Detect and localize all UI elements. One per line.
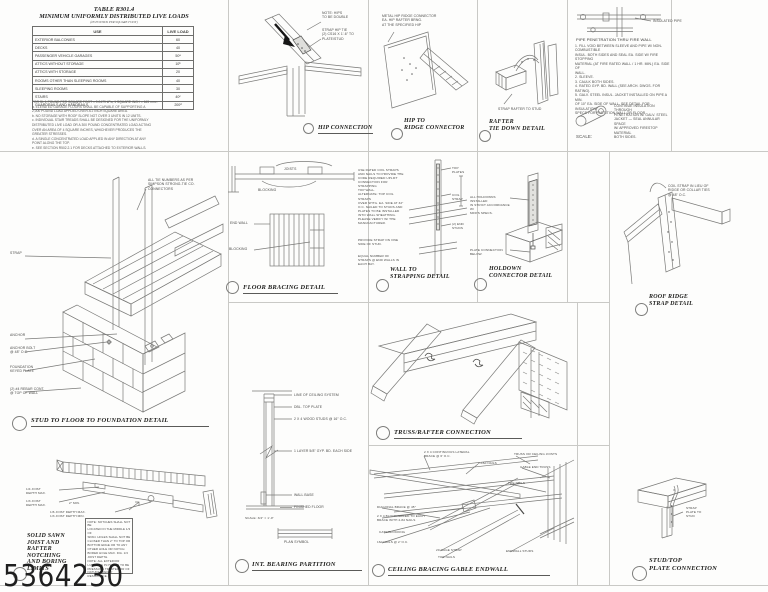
- label-hips-double: NOTE: HIPS TO BE DOUBLE: [322, 11, 362, 20]
- hip-to-ridge-drawing: [378, 30, 474, 118]
- cell-use: EXTERIOR BALCONIES: [33, 36, 163, 44]
- stud-to-floor-drawing: [25, 162, 225, 420]
- label-strap-plate-stud: STRAP PLATE TO STUD: [686, 506, 701, 518]
- label-ceiling-system: LINE OF CEILING SYSTEM: [294, 393, 339, 397]
- watermark-text: 5364230: [3, 559, 124, 592]
- note-wall-strapping: USE RATED COIL STRAPS AND NAILS TO PROVI…: [358, 168, 404, 225]
- floor-bracing-plan-drawing: [252, 212, 328, 270]
- title-holdown: HOLDOWN CONNECTOR DETAIL: [489, 266, 569, 280]
- label-top-plates: TOP PLATES: [452, 166, 464, 174]
- table-row: PASSENGER VEHICLE GARAGES50ᵃ: [33, 52, 194, 60]
- label-endwall-studs: ENDWALL STUDS: [506, 549, 533, 553]
- detail-bubble: [303, 123, 314, 134]
- table-row: ATTICS WITH STORAGE20: [33, 68, 194, 76]
- cell-load: 20: [163, 68, 194, 76]
- label-wall-base: WALL BASE: [294, 493, 314, 497]
- wall-strapping-drawing: [405, 158, 470, 280]
- label-cats-blocking: CATS/BLOCKING: [379, 530, 405, 534]
- label-wood-studs: 2 X 4 WOOD STUDS @ 16" O.C.: [294, 417, 347, 421]
- detail-bubble: [226, 281, 239, 294]
- label-hip-strap: STRAP HIP TIE (2) CS16 X 1'-6" TO PLATE/…: [322, 28, 370, 41]
- title-hip-connection: HIP CONNECTION: [318, 125, 373, 134]
- label-toe-nails-1: TOE NAILS: [508, 481, 525, 485]
- cell-load: 60: [163, 36, 194, 44]
- label-anchor-bolt: ANCHOR BOLT @ 48" O.C.: [10, 346, 40, 355]
- label-joists: JOISTS: [284, 167, 296, 171]
- detail-bubble: [376, 426, 390, 440]
- insulation-jacket-drawing: [574, 103, 612, 129]
- note-wall-strapping-3: EQUAL NUMBER OF STRAPS @ END WALLS IN EA…: [358, 254, 404, 266]
- label-finished-floor: FINISHED FLOOR: [294, 505, 324, 509]
- label-end-studs: (2) END STUDS: [452, 222, 464, 230]
- detail-bubble: [376, 279, 389, 292]
- label-scale-note: SCALE: 3/4" = 1'-0": [245, 516, 274, 520]
- detail-bubble: [474, 278, 487, 291]
- label-third-depth: 1/3 JOIST DEPTH MAX.: [26, 499, 60, 507]
- label-toe-nails-2: TOE NAILS: [438, 555, 455, 559]
- label-foundation-plate: FOUNDATION KEYED PLATE: [10, 365, 42, 374]
- title-wall-to-strapping: WALL TO STRAPPING DETAIL: [390, 267, 462, 281]
- table-footnotes: FOR SI: 1 POUND PER SQUARE FOOT = 0.0479…: [32, 100, 228, 151]
- table-row: EXTERIOR BALCONIES60: [33, 36, 194, 44]
- table-title: TABLE R301.4: [28, 6, 200, 13]
- label-plan-symbol: PLAN SYMBOL: [284, 540, 309, 544]
- table-row: SLEEPING ROOMS30: [33, 85, 194, 93]
- cell-load: 10ᵇ: [163, 60, 194, 68]
- label-coil-strap: COIL STRAP: [452, 193, 463, 201]
- cell-load: 40: [163, 76, 194, 84]
- title-rafter-tie-down: RAFTER TIE DOWN DETAIL: [489, 119, 559, 133]
- label-2in-min: 2" MIN.: [69, 501, 80, 505]
- title-stud-top-plate: STUD/TOP PLATE CONNECTION: [649, 557, 739, 572]
- divider-h2: [228, 302, 610, 303]
- cell-use: PASSENGER VEHICLE GARAGES: [33, 52, 163, 60]
- label-dbl-top-plate: DBL. TOP PLATE: [294, 405, 322, 409]
- title-int-bearing: INT. BEARING PARTITION: [252, 561, 362, 571]
- table-title-2: MINIMUM UNIFORMLY DISTRIBUTED LIVE LOADS: [28, 13, 200, 20]
- label-16d-nails: 16d NAILS @ 2' O.C.: [377, 540, 408, 544]
- hip-connection-drawing: [235, 6, 365, 120]
- label-20-gage-strap: 20 GAGE STRAP: [436, 548, 462, 552]
- firewall-side-note: CONTINUE INSULATION THROUGH PENETRATION …: [614, 104, 670, 140]
- table-row: ATTICS WITHOUT STORAGE10ᵇ: [33, 60, 194, 68]
- live-loads-table-heading: TABLE R301.4 MINIMUM UNIFORMLY DISTRIBUT…: [28, 6, 200, 24]
- label-endwall: END WALL: [230, 221, 248, 225]
- rafter-tie-down-drawing: [484, 38, 562, 110]
- label-blocking-section: BLOCKING: [258, 188, 276, 192]
- label-strap-rafter: STRAP RAFTER TO STUD: [498, 107, 558, 111]
- table-row: ROOMS OTHER THAN SLEEPING ROOMS40: [33, 76, 194, 84]
- firewall-notes-heading: PIPE PENETRATION THRU FIRE WALL: [576, 37, 671, 42]
- divider-v7: [577, 302, 578, 585]
- cell-load: 50ᵃ: [163, 52, 194, 60]
- note-wall-strapping-2: PROVIDE STRAP ON ONE SIDE OF STUD.: [358, 238, 404, 246]
- label-sixth-depth: 1/6 JOIST DEPTH MAX. 1/3 JOIST DEPTH MIN…: [50, 510, 92, 518]
- detail-bubble: [235, 559, 249, 573]
- truss-rafter-drawing: [371, 306, 573, 426]
- table-subtitle: (IN POUNDS PER SQUARE FOOT): [28, 20, 200, 24]
- label-insulated-pipe: INSULATED PIPE: [653, 19, 693, 23]
- label-lateral-brace: 2 X 4 CONTINUOUS LATERAL BRACE @ 6' O.C.: [424, 450, 480, 458]
- divider-h1: [0, 151, 768, 152]
- label-anchor: ANCHOR: [10, 333, 25, 337]
- cell-load: 40: [163, 44, 194, 52]
- detail-bubble: [12, 416, 27, 431]
- cell-load: 30: [163, 85, 194, 93]
- detail-sheet: TABLE R301.4 MINIMUM UNIFORMLY DISTRIBUT…: [0, 0, 768, 592]
- label-strap: STRAP: [10, 251, 22, 255]
- title-roof-ridge-strap: ROOF RIDGE STRAP DETAIL: [649, 294, 709, 308]
- divider-v2: [368, 0, 369, 585]
- note-hip-ridge: METAL HIP RIDGE CONNECTOR EA. HIP RAFTER…: [382, 14, 454, 27]
- title-truss-rafter: TRUSS/RAFTER CONNECTION: [394, 429, 522, 439]
- note-holdown-2: PLATE CONNECTION BELOW.: [470, 248, 506, 256]
- label-blocking-plan: BLOCKING: [229, 247, 247, 251]
- title-stud-to-floor: STUD TO FLOOR TO FOUNDATION DETAIL: [31, 417, 209, 427]
- col-header-load: LIVE LOAD: [163, 27, 194, 36]
- title-hip-to-ridge: HIP TO RIDGE CONNECTOR: [404, 118, 474, 132]
- label-2-16d-nails: 2-16d NAILS: [478, 461, 497, 465]
- label-coil-strap-ridge: COIL STRAP IN LIEU OF RIDGE OR COLLAR TI…: [668, 184, 718, 197]
- label-quarter-depth: 1/4 JOIST DEPTH MAX.: [26, 487, 60, 495]
- cell-use: ATTICS WITHOUT STORAGE: [33, 60, 163, 68]
- title-ceiling-bracing: CEILING BRACING GABLE ENDWALL: [388, 566, 550, 576]
- col-header-use: USE: [33, 27, 163, 36]
- int-bearing-drawing: [240, 388, 340, 546]
- title-floor-bracing: FLOOR BRACING DETAIL: [243, 284, 338, 294]
- cell-use: SLEEPING ROOMS: [33, 85, 163, 93]
- note-tie-numbers: ALL TIE NUMBERS AS PER SIMPSON STRONG-TI…: [148, 178, 198, 191]
- divider-v6: [609, 151, 610, 585]
- label-truss-joists: TRUSS OR CEILING JOISTS: [514, 452, 562, 456]
- divider-h3: [368, 445, 610, 446]
- detail-bubble: [479, 130, 491, 142]
- cell-use: ATTICS WITH STORAGE: [33, 68, 163, 76]
- label-rebar: (2) #4 REBAR CONT. @ TOP OF WALL: [10, 387, 50, 396]
- label-diagonal-brace: DIAGONAL BRACE @ 45°: [377, 505, 427, 509]
- scale-label: SCALE:: [576, 134, 592, 140]
- detail-bubble: [635, 303, 648, 316]
- cell-use: ROOMS OTHER THAN SLEEPING ROOMS: [33, 76, 163, 84]
- label-block-nailed: 2 X 4 BLOCK NAILED TO EACH BRACE WITH 4-…: [377, 514, 431, 522]
- detail-bubble: [372, 564, 385, 577]
- label-gyp-bd: 1 LAYER 5/8" GYP. BD. EACH SIDE: [294, 449, 352, 453]
- cell-use: DECKS: [33, 44, 163, 52]
- detail-bubble: [391, 128, 403, 140]
- label-gable-end-truss: GABLE END TRUSS: [520, 465, 562, 469]
- live-loads-table: USE LIVE LOAD EXTERIOR BALCONIES60 DECKS…: [32, 26, 194, 110]
- table-row: DECKS40: [33, 44, 194, 52]
- detail-bubble: [632, 566, 647, 581]
- table-header-row: USE LIVE LOAD: [33, 27, 194, 36]
